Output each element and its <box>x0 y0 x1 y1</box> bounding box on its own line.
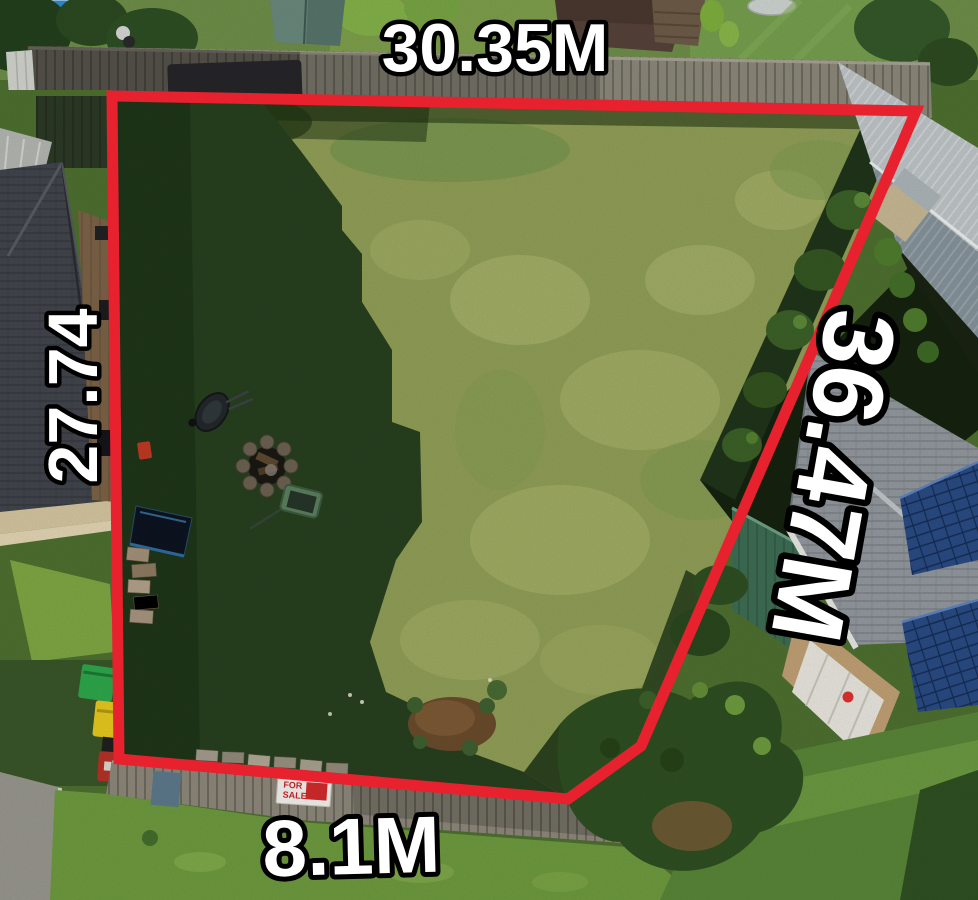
aerial-photo: FOR SALE 30.35M 27.74 36.47M 8.1M <box>0 0 978 900</box>
dimension-top: 30.35M <box>382 10 609 86</box>
dimension-bottom: 8.1M <box>261 800 441 894</box>
dimension-left: 27.74 <box>34 308 112 483</box>
